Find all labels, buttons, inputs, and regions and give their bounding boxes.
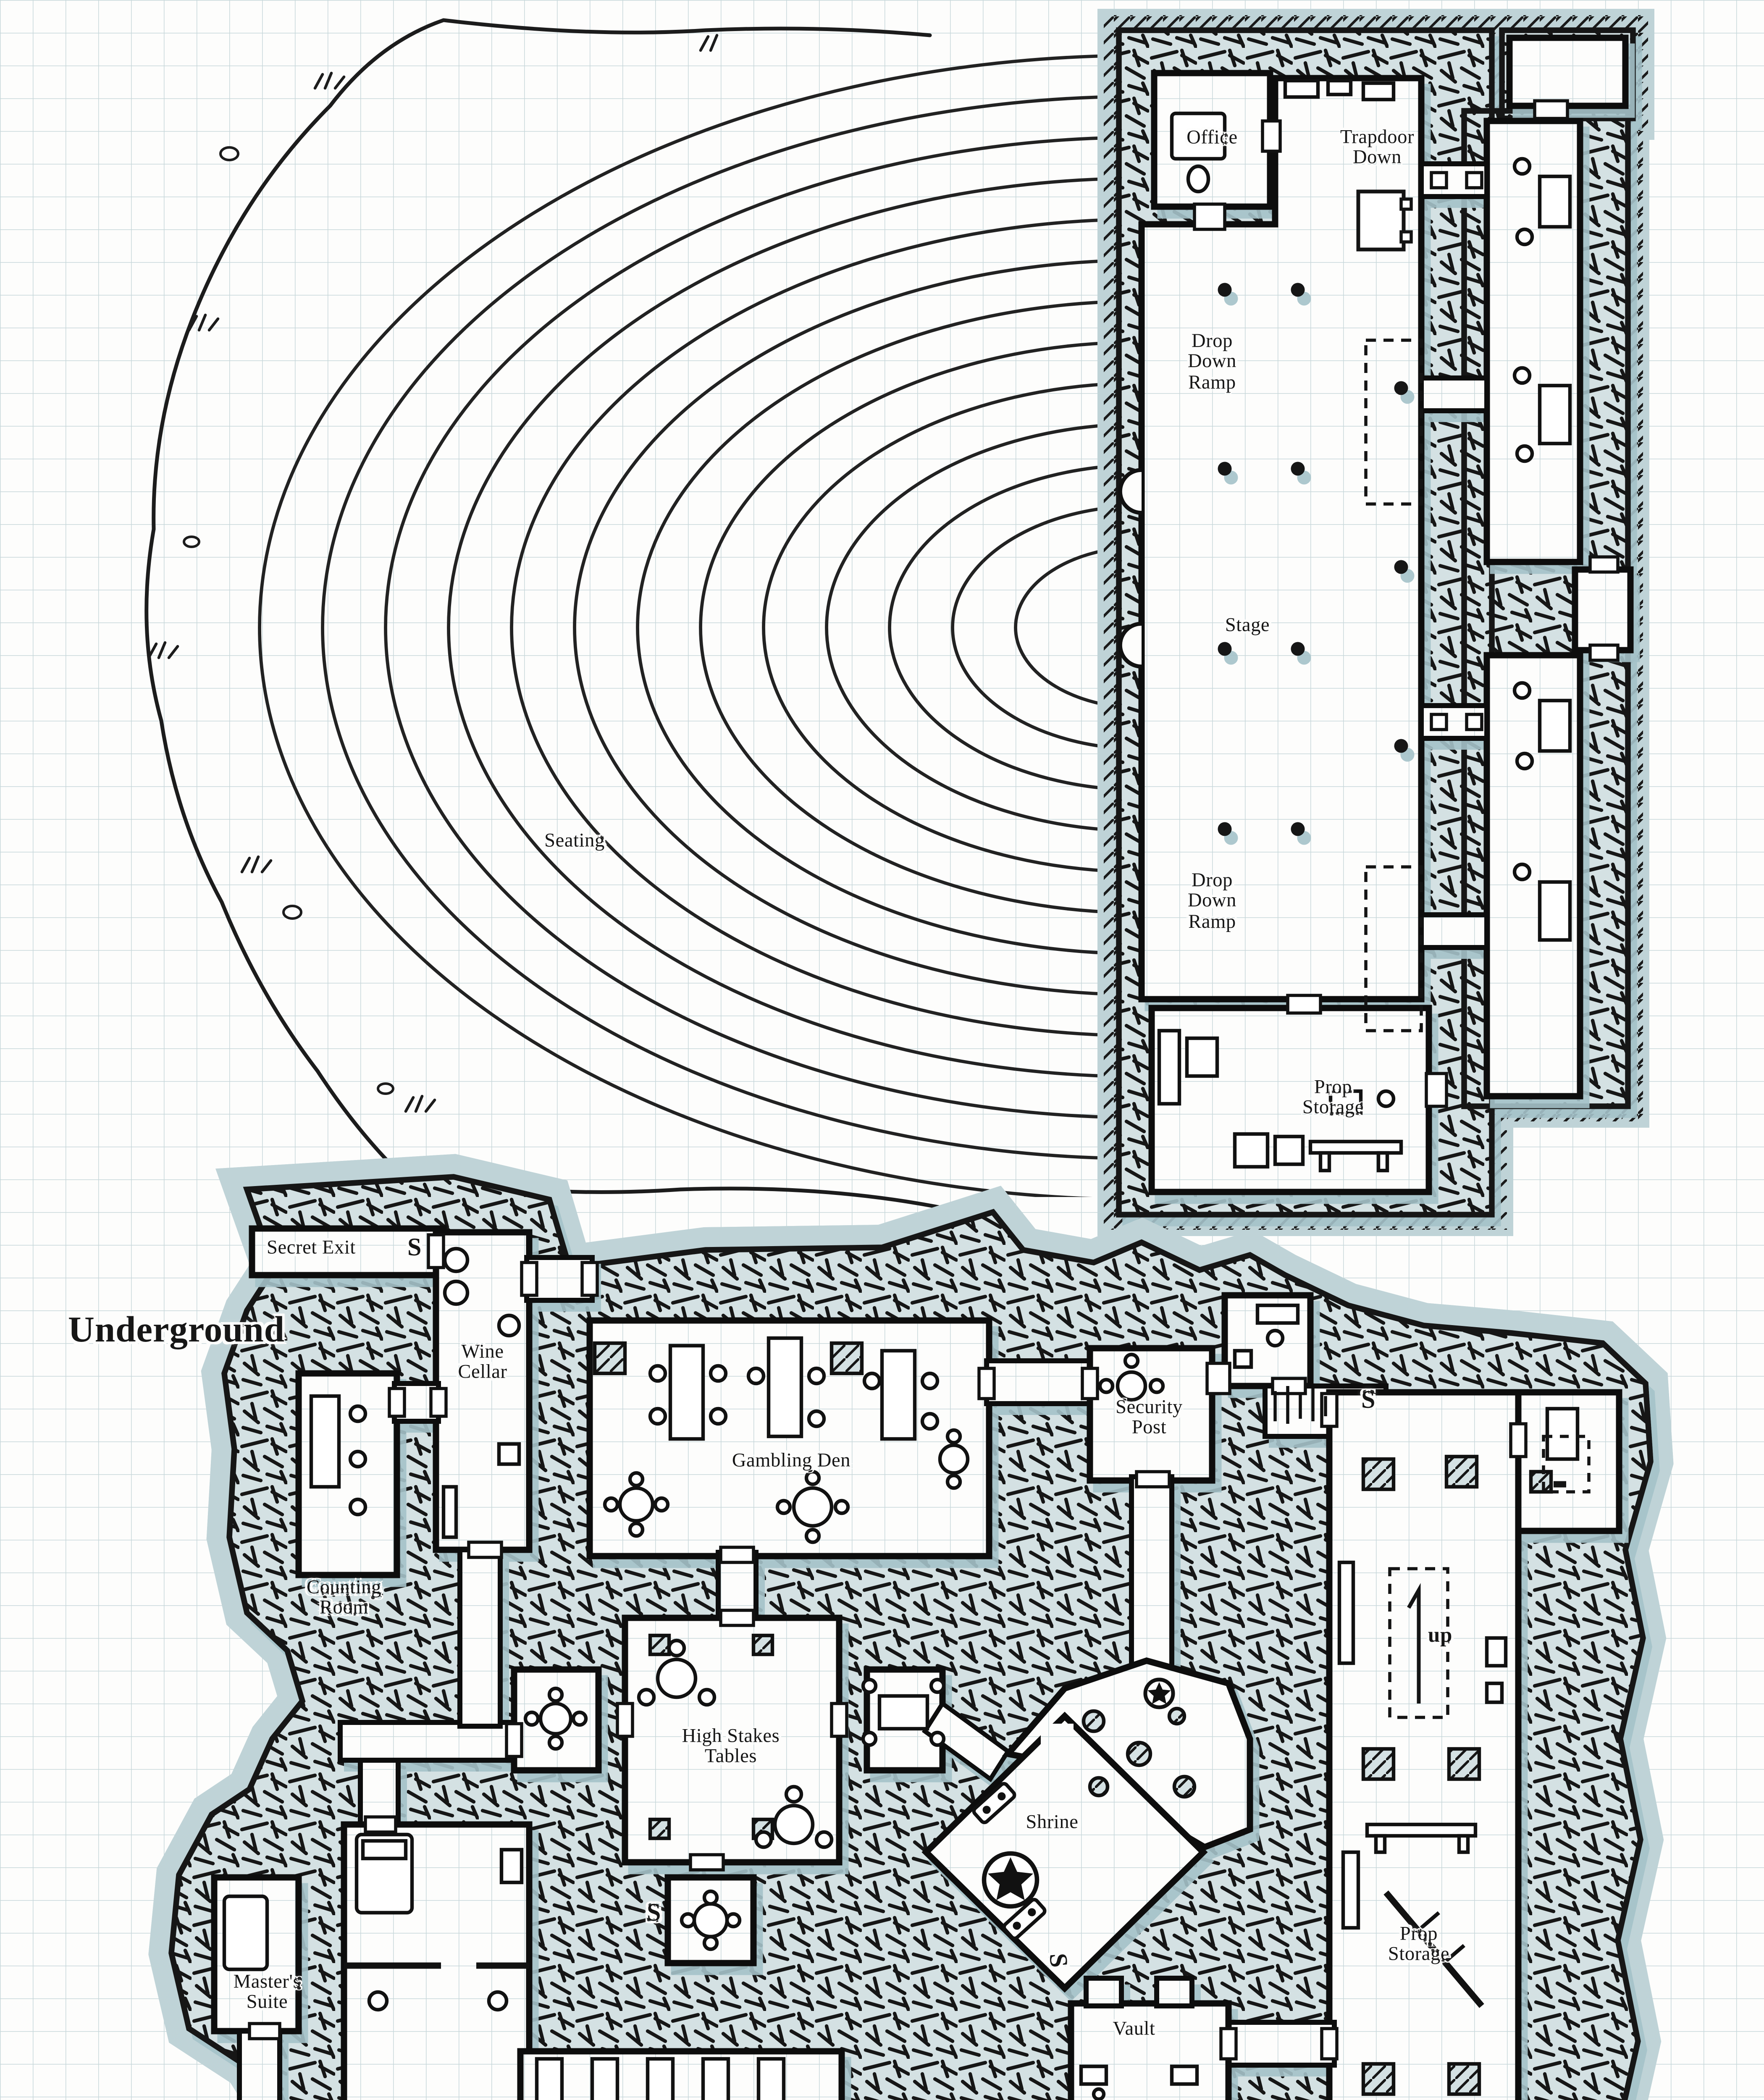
underground-level — [171, 1177, 1651, 2100]
security-post-room — [1090, 1348, 1212, 1480]
side-entrance — [1575, 570, 1630, 650]
secret-exit-tunnel — [252, 1228, 444, 1275]
prop-storage-underground — [1329, 1392, 1518, 2100]
barracks-room — [520, 2051, 842, 2100]
battle-map-canvas: Office Trapdoor Down Drop Down Ramp Stag… — [0, 0, 1764, 2100]
backstage-room-topright — [1509, 38, 1625, 106]
map-drawing — [0, 0, 1764, 2100]
